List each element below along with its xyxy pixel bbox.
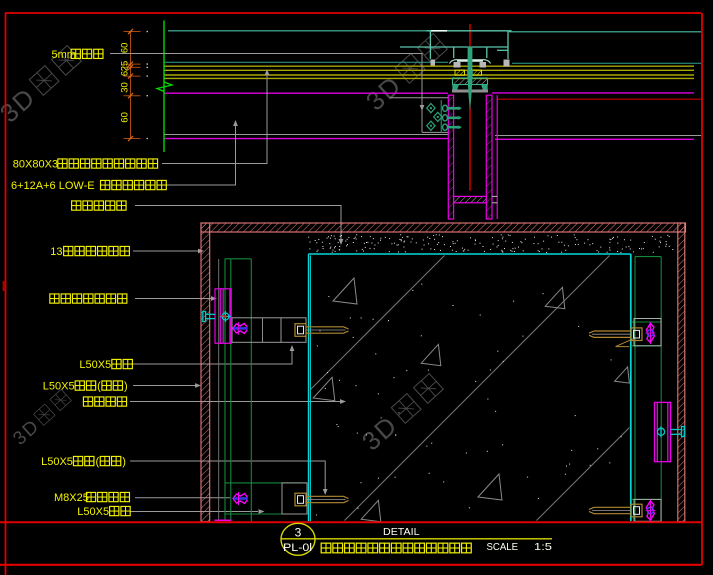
svg-text:PL-0l: PL-0l <box>283 542 312 554</box>
svg-text:1:5: 1:5 <box>534 541 552 553</box>
svg-text:): ) <box>124 381 128 393</box>
svg-text:DETAIL: DETAIL <box>383 526 420 538</box>
svg-text:80X80X3: 80X80X3 <box>13 159 58 171</box>
svg-text:L50X5: L50X5 <box>43 381 75 393</box>
svg-text:25: 25 <box>120 61 131 72</box>
svg-text:30: 30 <box>120 82 131 93</box>
svg-text:60: 60 <box>120 112 131 123</box>
svg-text:3: 3 <box>295 526 302 540</box>
svg-text:L50X5: L50X5 <box>77 506 109 518</box>
svg-text:(: ( <box>95 456 99 468</box>
svg-text:6: 6 <box>120 71 131 76</box>
svg-text:(: ( <box>97 381 101 393</box>
svg-text:13: 13 <box>50 246 62 258</box>
svg-text:SCALE: SCALE <box>487 541 519 553</box>
svg-text:L50X5: L50X5 <box>79 359 111 371</box>
svg-text:): ) <box>122 456 126 468</box>
svg-text:L50X5: L50X5 <box>41 456 73 468</box>
svg-text:6+12A+6 LOW-E: 6+12A+6 LOW-E <box>11 180 95 192</box>
svg-text:M8X25: M8X25 <box>54 492 89 504</box>
svg-text:60: 60 <box>120 43 131 54</box>
